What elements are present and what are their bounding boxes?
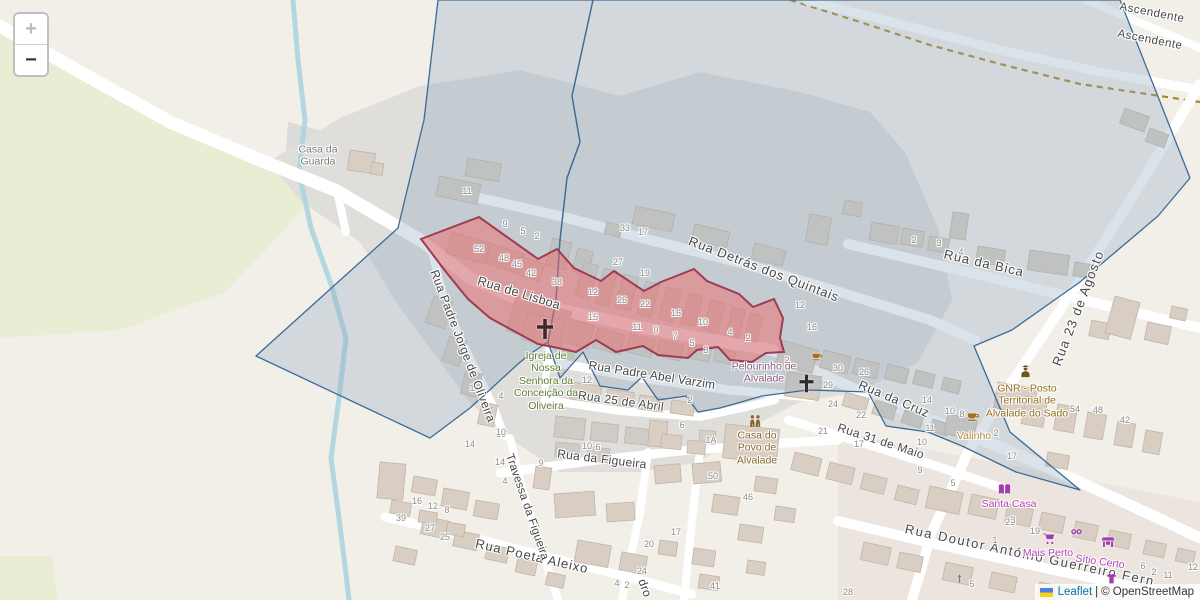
map-tiles <box>0 0 1200 600</box>
zoom-in-button[interactable]: + <box>15 14 47 45</box>
attribution-bar: Leaflet | © OpenStreetMap <box>1035 584 1200 600</box>
osm-copyright: © OpenStreetMap <box>1101 586 1194 598</box>
zoom-control: + − <box>13 12 49 77</box>
ukraine-flag-icon <box>1040 588 1053 597</box>
attribution-separator: | <box>1095 586 1098 598</box>
zoom-out-button[interactable]: − <box>15 45 47 75</box>
leaflet-link[interactable]: Leaflet <box>1058 586 1093 598</box>
leaflet-map-canvas[interactable]: Rua de LisboaRua Detrás dos QuintaisRua … <box>0 0 1200 600</box>
